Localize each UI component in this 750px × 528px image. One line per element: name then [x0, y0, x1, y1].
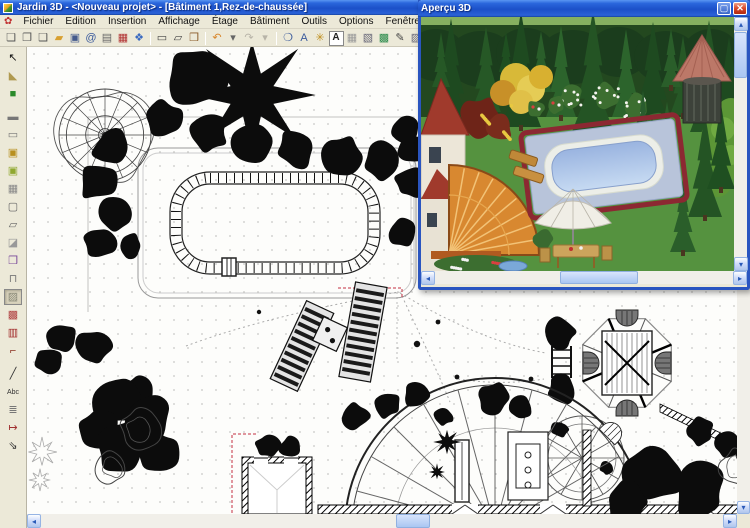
- draw-room-icon[interactable]: ▭: [155, 31, 170, 46]
- plan-tree[interactable]: [146, 99, 183, 136]
- toolbar-separator: [205, 32, 206, 45]
- plan-tree[interactable]: [600, 461, 613, 475]
- polygon-tool-icon[interactable]: ▱: [4, 217, 22, 233]
- close-button[interactable]: ✕: [733, 2, 747, 15]
- preview-scroll-up-button[interactable]: ▴: [734, 17, 748, 31]
- outline-tool-icon[interactable]: ▢: [4, 199, 22, 215]
- preview-scroll-down-button[interactable]: ▾: [734, 257, 748, 271]
- print-icon[interactable]: ▤: [100, 31, 115, 46]
- plan-pool[interactable]: [170, 172, 380, 276]
- preview-horizontal-scrollbar[interactable]: ◂ ▸: [421, 271, 747, 284]
- plan-tree[interactable]: [551, 422, 569, 437]
- zoom-icon[interactable]: ❍: [281, 31, 296, 46]
- scrollbar-corner: [737, 514, 750, 528]
- plan-tree[interactable]: [509, 395, 532, 418]
- text-format-icon[interactable]: A: [329, 31, 344, 46]
- plan-tree[interactable]: [82, 166, 117, 198]
- menu-bâtiment[interactable]: Bâtiment: [244, 15, 295, 28]
- new-project-icon[interactable]: ❏: [4, 31, 19, 46]
- hscroll-thumb[interactable]: [396, 514, 430, 528]
- slab-tool-icon[interactable]: ❒: [4, 253, 22, 269]
- terrain-tool-icon[interactable]: ■: [4, 86, 22, 102]
- wall-display-icon[interactable]: ▧: [361, 31, 376, 46]
- preview-vertical-scrollbar[interactable]: ▴ ▾: [734, 17, 747, 271]
- tool-palette: ↖◣■▬▭▣▣▦▢▱◪❒⊓▨▩▥⌐╱Abc≣↦⇘: [0, 47, 27, 528]
- texture-display-icon[interactable]: ▩: [377, 31, 392, 46]
- furniture-tool-icon[interactable]: ▥: [4, 325, 22, 341]
- door-tool-icon[interactable]: ⌐: [4, 343, 22, 359]
- plan-tree[interactable]: [434, 408, 454, 426]
- open-folder-icon[interactable]: ▰: [52, 31, 67, 46]
- window-title: Jardin 3D - <Nouveau projet> - [Bâtiment…: [17, 2, 307, 13]
- plan-tree[interactable]: [389, 218, 416, 247]
- preview-scroll-left-button[interactable]: ◂: [421, 271, 435, 285]
- toolbar-separator: [276, 32, 277, 45]
- preview-vscroll-track[interactable]: [734, 31, 747, 257]
- undo-icon[interactable]: ↶: [210, 31, 225, 46]
- select-tool-icon[interactable]: ↖: [4, 50, 22, 66]
- column-tool-icon[interactable]: ⊓: [4, 271, 22, 287]
- plan-tree[interactable]: [98, 197, 131, 232]
- maximize-button[interactable]: ▢: [717, 2, 731, 15]
- preview-title: Aperçu 3D: [421, 3, 715, 14]
- scroll-left-button[interactable]: ◂: [27, 514, 41, 528]
- app-icon: [3, 3, 13, 13]
- plan-tree[interactable]: [545, 316, 576, 350]
- export-3d-icon[interactable]: ❖: [132, 31, 147, 46]
- plan-tree[interactable]: [75, 332, 113, 363]
- plan-chair[interactable]: [583, 352, 599, 374]
- plan-parasol-set[interactable]: [583, 310, 672, 416]
- plan-chair[interactable]: [616, 310, 638, 326]
- menu-edition[interactable]: Edition: [59, 15, 102, 28]
- wall-edit-tool-icon[interactable]: ▭: [4, 127, 22, 143]
- object-catalog-icon[interactable]: ❒: [187, 31, 202, 46]
- preview-viewport[interactable]: ▴ ▾ ◂ ▸: [421, 17, 747, 284]
- plan-tree[interactable]: [279, 436, 300, 457]
- plan-path[interactable]: [400, 293, 546, 353]
- plan-tree[interactable]: [365, 140, 399, 181]
- plan-trellis[interactable]: [552, 346, 571, 378]
- plan-tree[interactable]: [342, 402, 371, 430]
- line-tool-icon[interactable]: ╱: [4, 366, 22, 382]
- preview-hscroll-track[interactable]: [435, 271, 733, 284]
- plan-tree[interactable]: [321, 136, 363, 175]
- plan-tree[interactable]: [678, 461, 723, 514]
- plan-tree[interactable]: [278, 131, 313, 170]
- floor-tool-icon[interactable]: ▨: [4, 289, 22, 305]
- plan-tree[interactable]: [189, 114, 226, 152]
- text-tool-icon[interactable]: Abc: [4, 384, 22, 400]
- window-tool-icon[interactable]: ▣: [4, 145, 22, 161]
- draw-polygon-room-icon[interactable]: ▱: [171, 31, 186, 46]
- plan-tree[interactable]: [46, 325, 75, 352]
- plan-tree[interactable]: [120, 233, 140, 259]
- annotation-pen-icon[interactable]: ✎: [393, 31, 408, 46]
- plan-spiky-tree[interactable]: [429, 463, 445, 479]
- wall-tool-icon[interactable]: ▬: [4, 109, 22, 125]
- preview-3d-scene[interactable]: [421, 17, 734, 271]
- plan-tree[interactable]: [255, 435, 282, 457]
- page-setup-icon[interactable]: ❑: [36, 31, 51, 46]
- application-window: Jardin 3D - <Nouveau projet> - [Bâtiment…: [0, 0, 750, 528]
- save-icon[interactable]: ▣: [68, 31, 83, 46]
- horizontal-scrollbar[interactable]: ◂ ▸: [27, 514, 737, 528]
- toolbar-separator: [150, 32, 151, 45]
- paving-tool-icon[interactable]: ▦: [4, 181, 22, 197]
- menu-insertion[interactable]: Insertion: [102, 15, 152, 28]
- preview-vscroll-thumb[interactable]: [734, 32, 747, 78]
- grid-display-icon[interactable]: ▦: [345, 31, 360, 46]
- menu-options[interactable]: Options: [333, 15, 379, 28]
- plan-tree[interactable]: [391, 116, 418, 146]
- menu-outils[interactable]: Outils: [295, 15, 333, 28]
- plan-pool-ladder[interactable]: [222, 258, 236, 276]
- export-image-icon[interactable]: ▦: [116, 31, 131, 46]
- scroll-down-button[interactable]: ▾: [737, 501, 750, 514]
- surface-tool-icon[interactable]: ▣: [4, 163, 22, 179]
- ramp-tool-icon[interactable]: ◪: [4, 235, 22, 251]
- preview-3d-window: Aperçu 3D ▢ ✕ ▴ ▾ ◂ ▸: [418, 0, 750, 290]
- redo-icon[interactable]: ↷: [242, 31, 257, 46]
- plan-tree[interactable]: [35, 350, 62, 375]
- plan-chair[interactable]: [655, 352, 671, 374]
- preview-scroll-right-button[interactable]: ▸: [733, 271, 747, 285]
- plant-icon: ✿: [4, 16, 12, 27]
- plan-tree[interactable]: [478, 382, 509, 415]
- zoom-text-icon[interactable]: A: [297, 31, 312, 46]
- stairs-tool-icon[interactable]: ≣: [4, 402, 22, 418]
- plan-tree[interactable]: [231, 124, 273, 163]
- measure-tool-icon[interactable]: ◣: [4, 68, 22, 84]
- preview-titlebar[interactable]: Aperçu 3D ▢ ✕: [418, 0, 750, 17]
- menu-étage[interactable]: Étage: [206, 15, 244, 28]
- send-mail-icon[interactable]: @: [84, 31, 99, 46]
- plan-chair[interactable]: [616, 400, 638, 416]
- camera-tool-icon[interactable]: ⇘: [4, 438, 22, 454]
- preview-hscroll-thumb[interactable]: [560, 271, 638, 284]
- roof-tool-icon[interactable]: ▩: [4, 307, 22, 323]
- menu-fichier[interactable]: Fichier: [17, 15, 59, 28]
- plan-tree[interactable]: [136, 432, 179, 470]
- plan-lounger[interactable]: [339, 282, 387, 382]
- redo-list-icon[interactable]: ▾: [258, 31, 273, 46]
- dimension-tool-icon[interactable]: ↦: [4, 420, 22, 436]
- open-project-icon[interactable]: ❐: [20, 31, 35, 46]
- scroll-right-button[interactable]: ▸: [723, 514, 737, 528]
- render-options-icon[interactable]: ✳: [313, 31, 328, 46]
- menu-affichage[interactable]: Affichage: [152, 15, 206, 28]
- undo-list-icon[interactable]: ▾: [226, 31, 241, 46]
- plan-tree[interactable]: [83, 229, 117, 257]
- hscroll-track[interactable]: [41, 514, 723, 528]
- plan-tree[interactable]: [92, 128, 128, 163]
- preview-pool: [520, 114, 687, 219]
